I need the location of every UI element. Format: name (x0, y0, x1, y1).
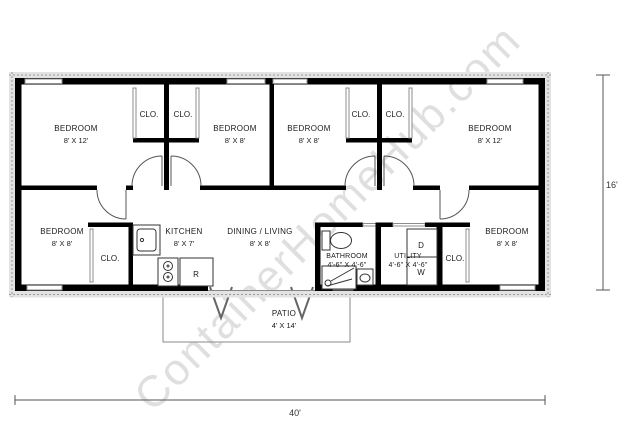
refrigerator-label: R (193, 270, 199, 279)
room-name: BEDROOM (485, 227, 528, 236)
wall-closet-divider-1 (164, 84, 169, 190)
room-patio: PATIO 4' X 14' (272, 309, 297, 330)
bathroom-door (363, 224, 376, 227)
window-top-2 (227, 79, 265, 84)
closet-door-1 (133, 88, 136, 138)
room-size: 4'-6" X 4'-6" (327, 262, 366, 269)
room-name: BEDROOM (54, 124, 97, 133)
room-name: BEDROOM (40, 227, 83, 236)
room-size: 8' X 8' (225, 136, 246, 145)
door-swing-bedroom-bottom-right (440, 190, 469, 219)
window-bottom-1 (27, 286, 62, 291)
wall-br-closet-top (443, 223, 471, 228)
burner-dot-2 (167, 276, 170, 279)
closet-label-2: CLO. (174, 110, 193, 119)
closet-label-3: CLO. (352, 110, 371, 119)
closet-label-5: CLO. (101, 254, 120, 263)
room-size: 4'-6" X 4'-6" (388, 262, 427, 269)
floor-plan: ContainerHomeHub.com (0, 0, 640, 447)
room-size: 8' X 7' (174, 239, 195, 248)
window-bottom-2 (500, 286, 535, 291)
door-swing-bedroom-top-mid-left (171, 156, 201, 186)
room-size: 8' X 8' (497, 239, 518, 248)
wall-bedroom2-3 (270, 84, 275, 186)
room-name: BEDROOM (468, 124, 511, 133)
closet-label-1: CLO. (140, 110, 159, 119)
room-bedroom-bottom-left: BEDROOM 8' X 8' (40, 227, 83, 248)
room-bedroom-bottom-right: BEDROOM 8' X 8' (485, 227, 528, 248)
wall-closet-divider-2 (377, 84, 382, 190)
room-name: PATIO (272, 309, 296, 318)
wall-left (15, 78, 22, 291)
room-bedroom-top-mid-right: BEDROOM 8' X 8' (287, 124, 330, 145)
closet-door-5 (90, 229, 93, 282)
burner-dot-1 (167, 265, 170, 268)
closet-door-4 (409, 88, 412, 138)
wall-mid-4 (413, 186, 440, 191)
room-bedroom-top-left: BEDROOM 8' X 12' (54, 124, 97, 145)
room-name: UTILITY (394, 253, 422, 260)
bath-sink-icon (357, 269, 373, 285)
room-kitchen: KITCHEN 8' X 7' (165, 227, 202, 248)
dimension-width-label: 40' (289, 408, 301, 418)
wall-closet2-front (346, 138, 412, 143)
closet-door-2 (196, 88, 199, 138)
kitchen-sink-icon (137, 229, 156, 251)
wall-bl-closet-right (129, 223, 134, 285)
room-name: BEDROOM (287, 124, 330, 133)
toilet-bowl-icon (331, 233, 352, 249)
toilet-tank-icon (322, 231, 330, 250)
room-size: 8' X 12' (64, 136, 89, 145)
room-size: 8' X 8' (52, 239, 73, 248)
door-swing-bedroom-bottom-left (97, 190, 126, 219)
bathroom-fixtures (322, 231, 373, 289)
wall-bathroom-utility-divider (376, 223, 382, 285)
dryer-label: D (418, 241, 424, 250)
wall-right (539, 78, 546, 291)
room-size: 4' X 14' (272, 321, 297, 330)
room-name: KITCHEN (165, 227, 202, 236)
wall-mid-2 (126, 186, 133, 191)
utility-door (393, 224, 425, 227)
room-size: 8' X 8' (250, 239, 271, 248)
closet-label-4: CLO. (386, 110, 405, 119)
wall-mid-1 (15, 186, 97, 191)
wall-bathroom-top (315, 223, 363, 228)
closet-label-6: CLO. (446, 254, 465, 263)
wall-bathroom-left (315, 223, 321, 285)
room-size: 8' X 12' (478, 136, 503, 145)
wall-bl-closet-top (88, 223, 133, 228)
wall-utility-top-1 (381, 223, 393, 228)
room-bedroom-top-mid-left: BEDROOM 8' X 8' (213, 124, 256, 145)
window-top-4 (487, 79, 523, 84)
window-top-1 (25, 79, 62, 84)
window-top-3 (273, 79, 307, 84)
wall-mid-3 (200, 186, 346, 191)
wall-closet1-front (133, 138, 199, 143)
room-name: DINING / LIVING (227, 227, 292, 236)
room-bathroom: BATHROOM 4'-6" X 4'-6" (326, 253, 368, 269)
room-name: BATHROOM (326, 253, 368, 260)
room-name: BEDROOM (213, 124, 256, 133)
room-size: 8' X 8' (299, 136, 320, 145)
room-bedroom-top-right: BEDROOM 8' X 12' (468, 124, 511, 145)
closet-door-6 (466, 229, 469, 282)
dimension-height-label: 16' (606, 180, 618, 190)
closet-door-3 (346, 88, 349, 138)
door-swing-bedroom-top-left (132, 156, 162, 186)
washer-label: W (417, 268, 425, 277)
wall-mid-5 (469, 186, 545, 191)
